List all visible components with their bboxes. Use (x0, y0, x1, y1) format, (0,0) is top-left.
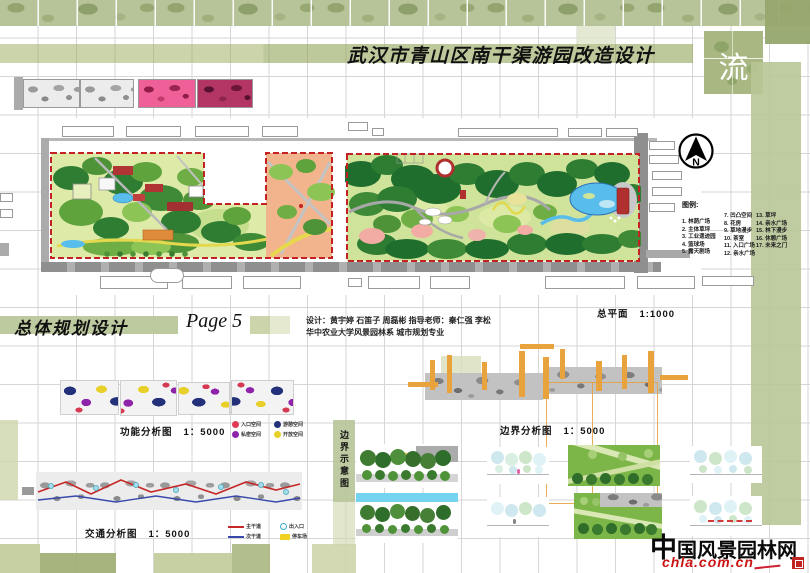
function-diagram-strip (60, 380, 119, 415)
building-footprint (649, 141, 675, 150)
boundary-diagram-label: 边界分析图 1：5000 (500, 423, 605, 437)
sketch-tree-row (356, 444, 458, 488)
boundary-marker (660, 375, 688, 380)
legend-item: 13. 草坪 (756, 213, 787, 221)
label-scale: 1：5000 (563, 426, 605, 437)
function-diagram-label: 功能分析图 1：5000 (120, 424, 225, 438)
watermark-url-row: chla.com.cn (662, 554, 804, 572)
sketch-tree-row (356, 493, 458, 543)
legend-label: 停车场 (292, 534, 307, 540)
green-cell (40, 553, 116, 573)
building-footprint (0, 209, 13, 218)
building-footprint (606, 128, 638, 137)
site-thumbnail (23, 79, 80, 108)
entry-space-dot (232, 421, 239, 428)
boundary-marker (430, 360, 435, 390)
green-cell (270, 316, 290, 334)
caption-scale: 1:1000 (639, 309, 675, 320)
boundary-marker (520, 344, 554, 349)
building-footprint (348, 278, 362, 287)
building-footprint (150, 268, 184, 283)
sketch-plan-detail (568, 445, 660, 486)
legend-item: 11. 入口广场 (724, 243, 755, 251)
building-footprint (430, 276, 470, 289)
boundary-marker (560, 349, 565, 379)
green-cell (154, 553, 232, 573)
sketch-watercolor (690, 446, 762, 483)
site-thumbnail (197, 79, 253, 108)
building-footprint (262, 126, 298, 137)
boundary-marker (519, 351, 525, 397)
building-footprint (243, 276, 301, 289)
building-footprint (195, 126, 249, 137)
green-cell (250, 316, 270, 334)
board-title: 武汉市青山区南干渠游园改造设计 (347, 41, 655, 68)
building-footprint (182, 276, 232, 289)
legend-item: 1. 林荫广场 (682, 219, 716, 227)
traffic-routes (36, 472, 302, 510)
label-scale: 1：5000 (148, 529, 190, 540)
gate-circle-icon (280, 523, 287, 530)
legend-item: 15. 林下漫步 (756, 228, 787, 236)
legend-label: 游憩空间 (283, 422, 303, 428)
building-footprint (348, 122, 368, 131)
legend-label: 次干道 (246, 534, 261, 540)
boundary-marker (447, 355, 452, 393)
building-footprint (62, 126, 114, 137)
legend-item: 12. 亲水广场 (724, 251, 755, 259)
road-top (49, 138, 657, 141)
green-cell (0, 544, 40, 573)
green-cell (0, 420, 18, 500)
building-footprint (368, 276, 420, 289)
right-park-plan (345, 152, 641, 264)
watermark: 中国风景园林网 chla.com.cn (648, 518, 810, 573)
north-compass-icon: N (676, 131, 716, 173)
label-text: 交通分析图 (85, 529, 138, 540)
site-thumbnail (138, 79, 196, 108)
legend-item: 3. 工业遗迹园 (682, 234, 716, 242)
road-left (41, 138, 49, 266)
recreation-space-dot (274, 421, 281, 428)
building-footprint (649, 155, 679, 164)
credits-line1: 设计：黄宇婷 石笛子 周磊彬 指导老师：秦仁强 李松 (306, 315, 491, 327)
function-diagram-strip (231, 380, 294, 415)
building-footprint (372, 128, 384, 136)
green-cell (312, 544, 356, 573)
building-footprint (545, 276, 625, 289)
bamboo-photo-strip (0, 0, 810, 26)
green-cell (765, 0, 810, 44)
master-plan-caption: 总平面 1:1000 (597, 306, 675, 320)
building-footprint (568, 128, 602, 137)
parking-swatch (280, 534, 290, 540)
legend-item: 9. 草地漫步 (724, 228, 755, 236)
watermark-seal-icon (792, 557, 804, 569)
caption-text: 总平面 (597, 309, 629, 320)
legend-item: 5. 露天剧场 (682, 249, 716, 257)
legend-label: 私密空间 (241, 432, 261, 438)
boundary-marker (482, 362, 487, 390)
site-thumbnail (80, 79, 134, 108)
page-label: Page 5 (186, 310, 242, 333)
secondary-road-line (228, 536, 244, 538)
label-text: 功能分析图 (120, 427, 173, 438)
credits: 设计：黄宇婷 石笛子 周磊彬 指导老师：秦仁强 李松 华中农业大学风景园林系 城… (306, 315, 491, 339)
function-diagram-strip (120, 380, 177, 416)
building-footprint (0, 243, 9, 256)
watermark-url: chla.com.cn (662, 554, 754, 570)
sketch-watercolor (487, 447, 549, 484)
svg-text:N: N (692, 157, 700, 169)
legend-label: 入口空间 (241, 422, 261, 428)
green-column (333, 502, 355, 546)
red-note-squiggle (708, 520, 752, 522)
building-footprint (458, 128, 558, 137)
green-cell (232, 544, 270, 573)
legend-title: 图例: (682, 200, 698, 210)
traffic-diagram-label: 交通分析图 1：5000 (85, 526, 190, 540)
boundary-sketch-label: 边界示意图 (338, 430, 351, 500)
function-diagram-strip (178, 382, 230, 415)
legend-item: 17. 未来之门 (756, 243, 787, 251)
open-space-dot (274, 431, 281, 438)
building-footprint (649, 203, 675, 212)
design-board: 武汉市青山区南干渠游园改造设计 流 (0, 0, 810, 573)
legend-item: 7. 凹凸空间 (724, 213, 755, 221)
traffic-side-mark (22, 487, 34, 495)
film-strip-bar (14, 77, 23, 110)
main-road-line (228, 526, 244, 528)
left-park-plan (49, 150, 335, 263)
sketch-watercolor (487, 497, 549, 537)
legend-label: 开放空间 (283, 432, 303, 438)
section-title: 总体规划设计 (14, 314, 128, 339)
label-text: 边界分析图 (500, 426, 553, 437)
credits-line2: 华中农业大学风景园林系 城市规划专业 (306, 327, 491, 339)
building-footprint (652, 187, 682, 196)
building-footprint (0, 193, 13, 202)
private-space-dot (232, 431, 239, 438)
red-script-stroke (754, 557, 781, 570)
label-scale: 1：5000 (183, 427, 225, 438)
legend-label: 出入口 (289, 524, 304, 530)
building-footprint (126, 126, 181, 137)
plan-legend: 图例: 1. 林荫广场 2. 主体草坪 3. 工业遗迹园 4. 篮球场 5. 露… (680, 200, 808, 296)
legend-label: 主干道 (246, 524, 261, 530)
